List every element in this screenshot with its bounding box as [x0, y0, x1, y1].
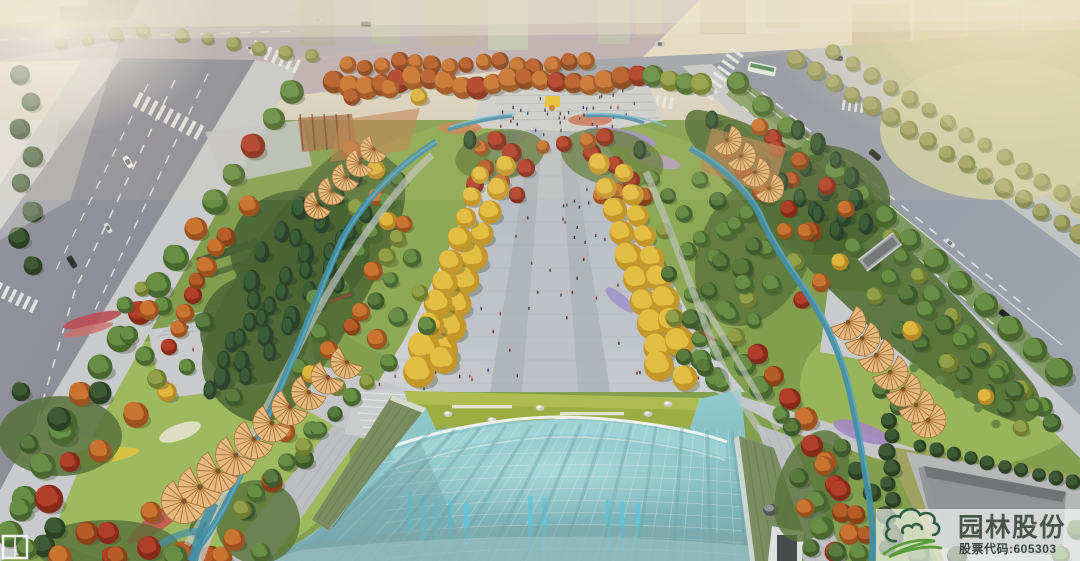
svg-text:股票代码:605303: 股票代码:605303	[959, 541, 1057, 556]
svg-text:园林股份: 园林股份	[958, 514, 1066, 542]
